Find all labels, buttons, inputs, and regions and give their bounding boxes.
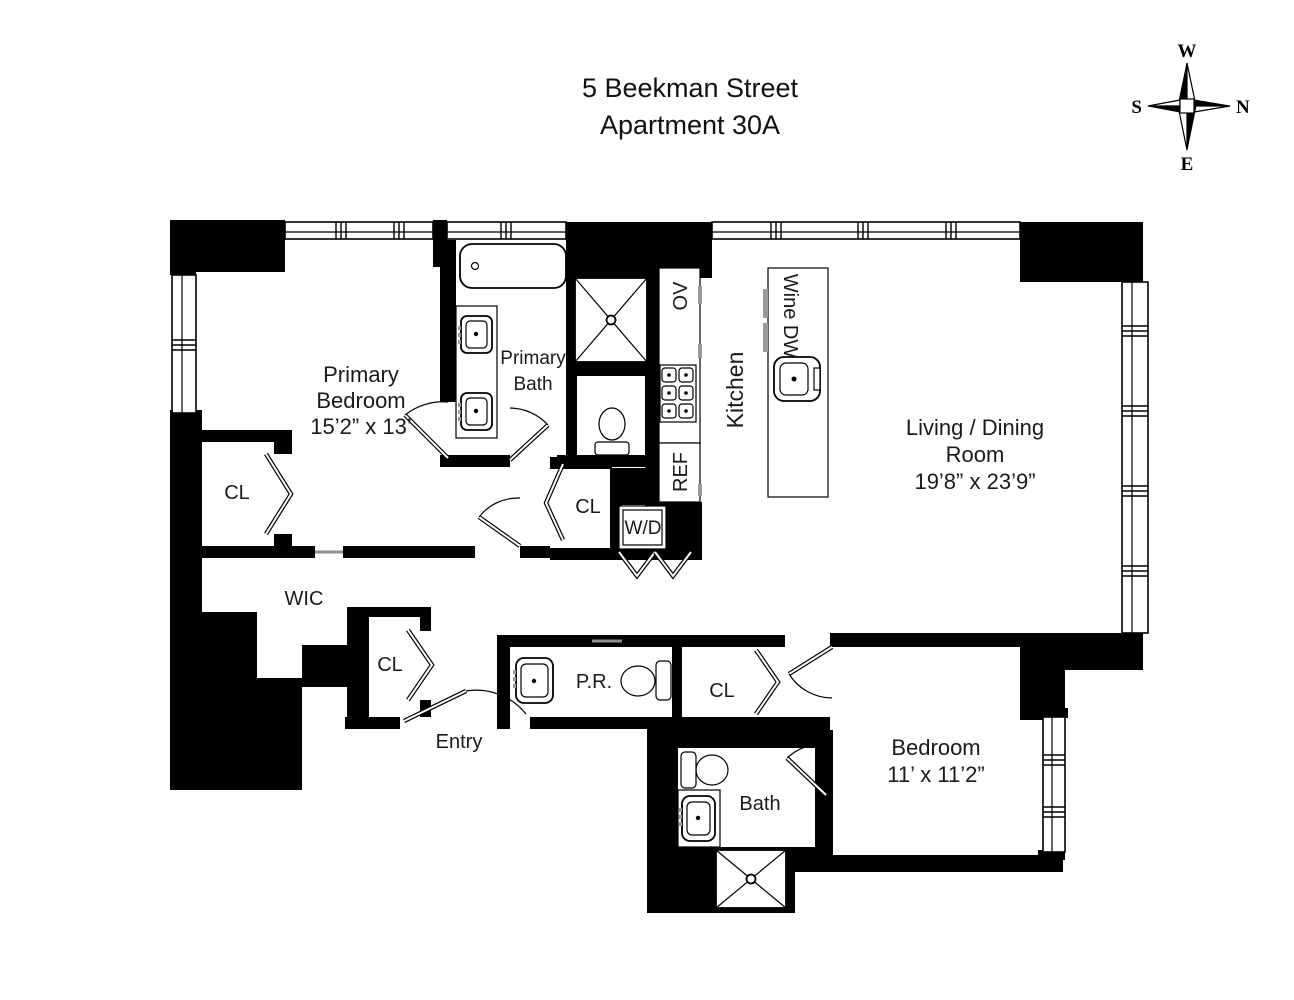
compass-east-label: E <box>1181 154 1194 175</box>
powder-room-label: P.R. <box>576 671 612 693</box>
bifold-entry-closet <box>408 630 432 700</box>
entry-closet-label: CL <box>377 654 403 676</box>
toilet-primary <box>595 408 629 455</box>
bedroom-dims: 11’ x 11’2” <box>887 762 984 787</box>
living-dining-label-1: Living / Dining <box>906 415 1044 440</box>
window-top-living <box>712 222 1020 239</box>
primary-bath-label-2: Bath <box>513 374 552 395</box>
compass-south-label: S <box>1131 97 1142 118</box>
title-line1: 5 Beekman Street <box>582 73 799 103</box>
primary-bath-label-1: Primary <box>500 348 566 369</box>
bath-sink <box>678 790 720 847</box>
door-primary-bath <box>510 408 548 460</box>
floorplan-canvas: 5 Beekman Street Apartment 30A W N S E <box>0 0 1294 1000</box>
bifold-bedroom-closet <box>756 650 778 714</box>
oven-label: OV <box>670 281 692 311</box>
bathtub <box>460 244 566 288</box>
primary-bedroom-dims: 15’2” x 13’ <box>310 414 412 439</box>
shower-primary <box>575 278 647 362</box>
walls <box>170 220 1143 913</box>
door-bedroom <box>789 647 832 698</box>
bifold-hall-closet <box>546 464 563 540</box>
wine-dw-label: Wine DW <box>779 274 801 359</box>
compass-north-label: N <box>1236 97 1250 118</box>
wic-label: WIC <box>285 588 324 610</box>
washer-dryer-label: W/D <box>625 518 662 539</box>
refrigerator-label: REF <box>670 452 692 492</box>
window-right-living <box>1122 282 1148 633</box>
cooktop <box>660 365 696 422</box>
bath-toilet <box>681 752 728 788</box>
door-hall <box>479 498 520 546</box>
bifold-primary-closet <box>266 454 291 534</box>
compass-rose-icon: W N S E <box>1131 41 1250 175</box>
vanity-double-sink <box>456 306 497 438</box>
shower-bath <box>716 850 786 908</box>
pr-toilet <box>621 661 671 700</box>
window-top-bath <box>447 222 566 239</box>
compass-west-label: W <box>1178 41 1197 62</box>
primary-closet-label: CL <box>224 482 250 504</box>
entry-label: Entry <box>436 731 483 753</box>
kitchen-label: Kitchen <box>722 352 748 429</box>
hall-closet-label: CL <box>575 496 601 518</box>
title-line2: Apartment 30A <box>600 110 780 140</box>
window-left-bedroom <box>172 275 196 413</box>
floorplan-page: 5 Beekman Street Apartment 30A W N S E <box>0 0 1294 1000</box>
living-dining-dims: 19’8” x 23’9” <box>914 469 1035 494</box>
primary-bedroom-label-2: Bedroom <box>316 388 405 413</box>
pr-sink <box>513 658 553 703</box>
bedroom-label: Bedroom <box>891 735 980 760</box>
living-dining-label-2: Room <box>946 442 1005 467</box>
bedroom-closet-label: CL <box>709 680 735 702</box>
window-top-bedroom <box>285 222 433 239</box>
bath-label: Bath <box>739 793 780 815</box>
primary-bedroom-label-1: Primary <box>323 362 399 387</box>
window-right-bedroom <box>1043 717 1065 852</box>
